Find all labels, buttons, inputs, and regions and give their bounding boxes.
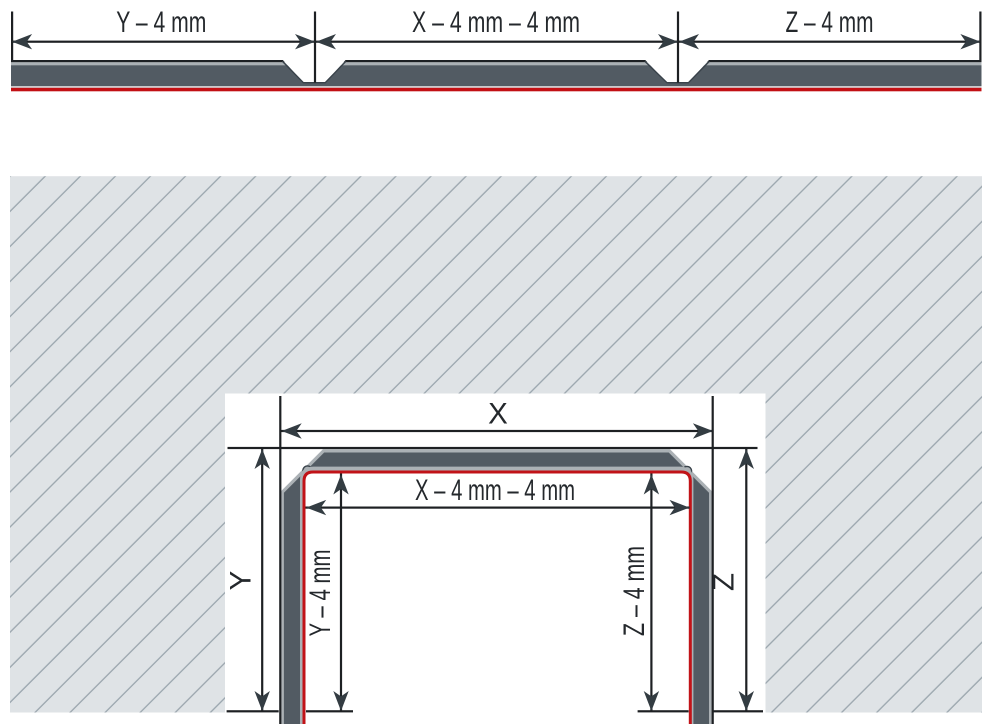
svg-text:Z: Z	[708, 573, 741, 591]
svg-text:Y: Y	[225, 570, 258, 590]
svg-text:X – 4 mm – 4 mm: X – 4 mm – 4 mm	[412, 6, 580, 39]
svg-text:X – 4 mm – 4 mm: X – 4 mm – 4 mm	[415, 474, 575, 507]
svg-text:Z – 4 mm: Z – 4 mm	[786, 6, 874, 39]
svg-text:Y – 4 mm: Y – 4 mm	[304, 550, 337, 637]
svg-text:X: X	[488, 398, 508, 431]
svg-text:Y – 4 mm: Y – 4 mm	[116, 6, 206, 39]
svg-text:Z – 4 mm: Z – 4 mm	[618, 546, 651, 636]
